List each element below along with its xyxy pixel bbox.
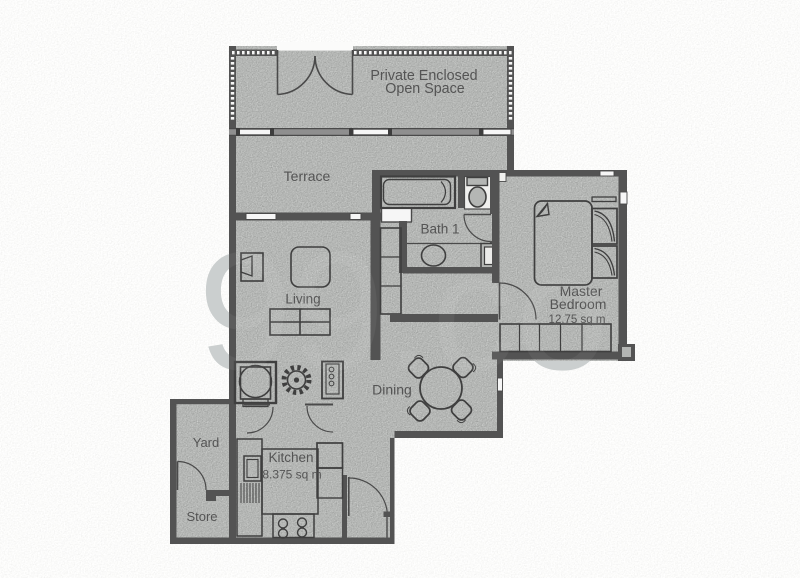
svg-text:8.375 sq m: 8.375 sq m xyxy=(262,468,321,482)
svg-text:Yard: Yard xyxy=(193,435,220,450)
svg-text:Terrace: Terrace xyxy=(284,168,331,184)
svg-text:Open Space: Open Space xyxy=(385,81,465,97)
svg-text:99.co: 99.co xyxy=(198,217,609,405)
svg-text:Store: Store xyxy=(186,509,217,524)
svg-text:Kitchen: Kitchen xyxy=(268,450,313,465)
